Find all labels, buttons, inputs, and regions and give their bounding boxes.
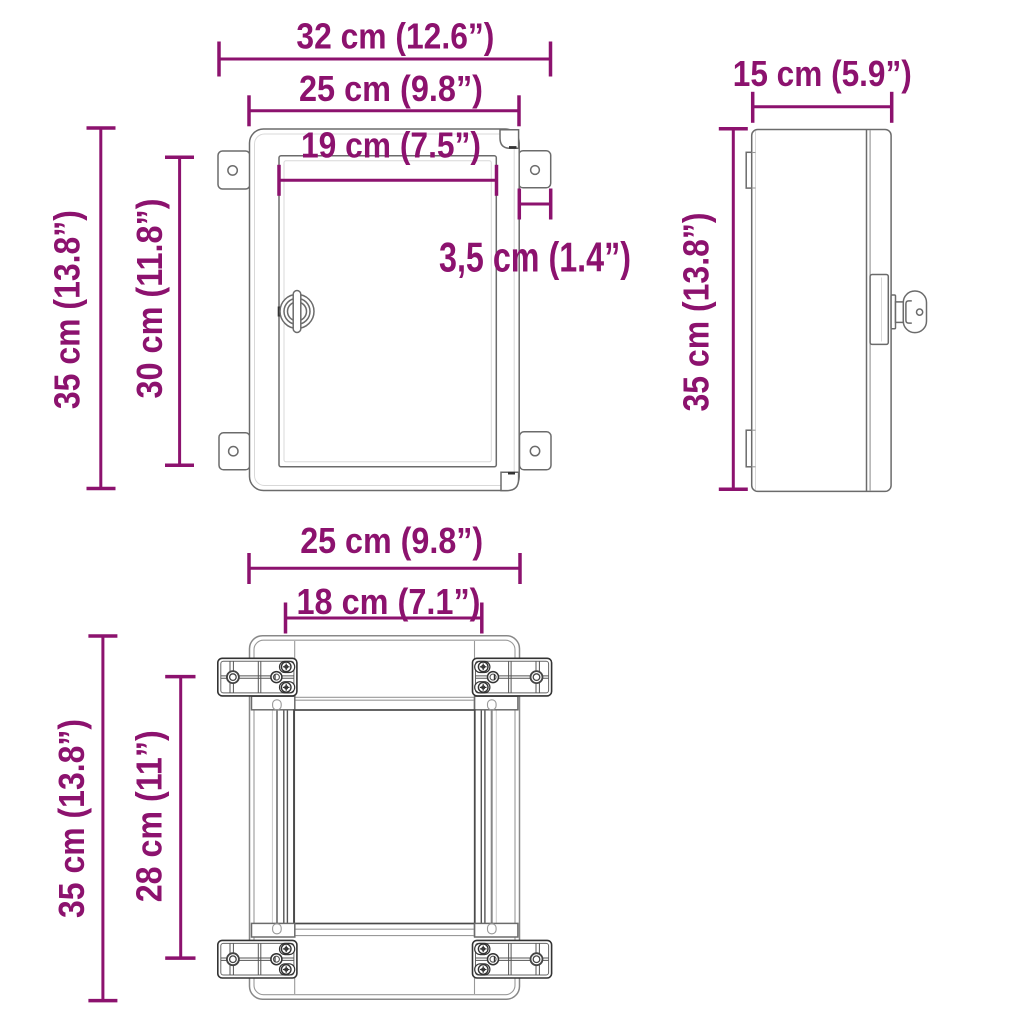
svg-text:32 cm (12.6”): 32 cm (12.6”) [296, 16, 494, 57]
svg-text:15 cm (5.9”): 15 cm (5.9”) [733, 53, 912, 94]
svg-text:35 cm (13.8”): 35 cm (13.8”) [46, 210, 87, 409]
svg-text:35 cm (13.8”): 35 cm (13.8”) [51, 719, 92, 918]
svg-text:28 cm (11”): 28 cm (11”) [129, 730, 170, 902]
svg-text:25 cm (9.8”): 25 cm (9.8”) [300, 520, 483, 561]
svg-text:19 cm (7.5”): 19 cm (7.5”) [301, 124, 481, 165]
svg-text:18 cm (7.1”): 18 cm (7.1”) [297, 581, 481, 622]
svg-text:30 cm (11.8”): 30 cm (11.8”) [129, 199, 170, 399]
svg-text:3,5 cm (1.4”): 3,5 cm (1.4”) [439, 234, 631, 281]
svg-text:35 cm (13.8”): 35 cm (13.8”) [676, 213, 717, 412]
svg-text:25 cm (9.8”): 25 cm (9.8”) [299, 68, 483, 109]
